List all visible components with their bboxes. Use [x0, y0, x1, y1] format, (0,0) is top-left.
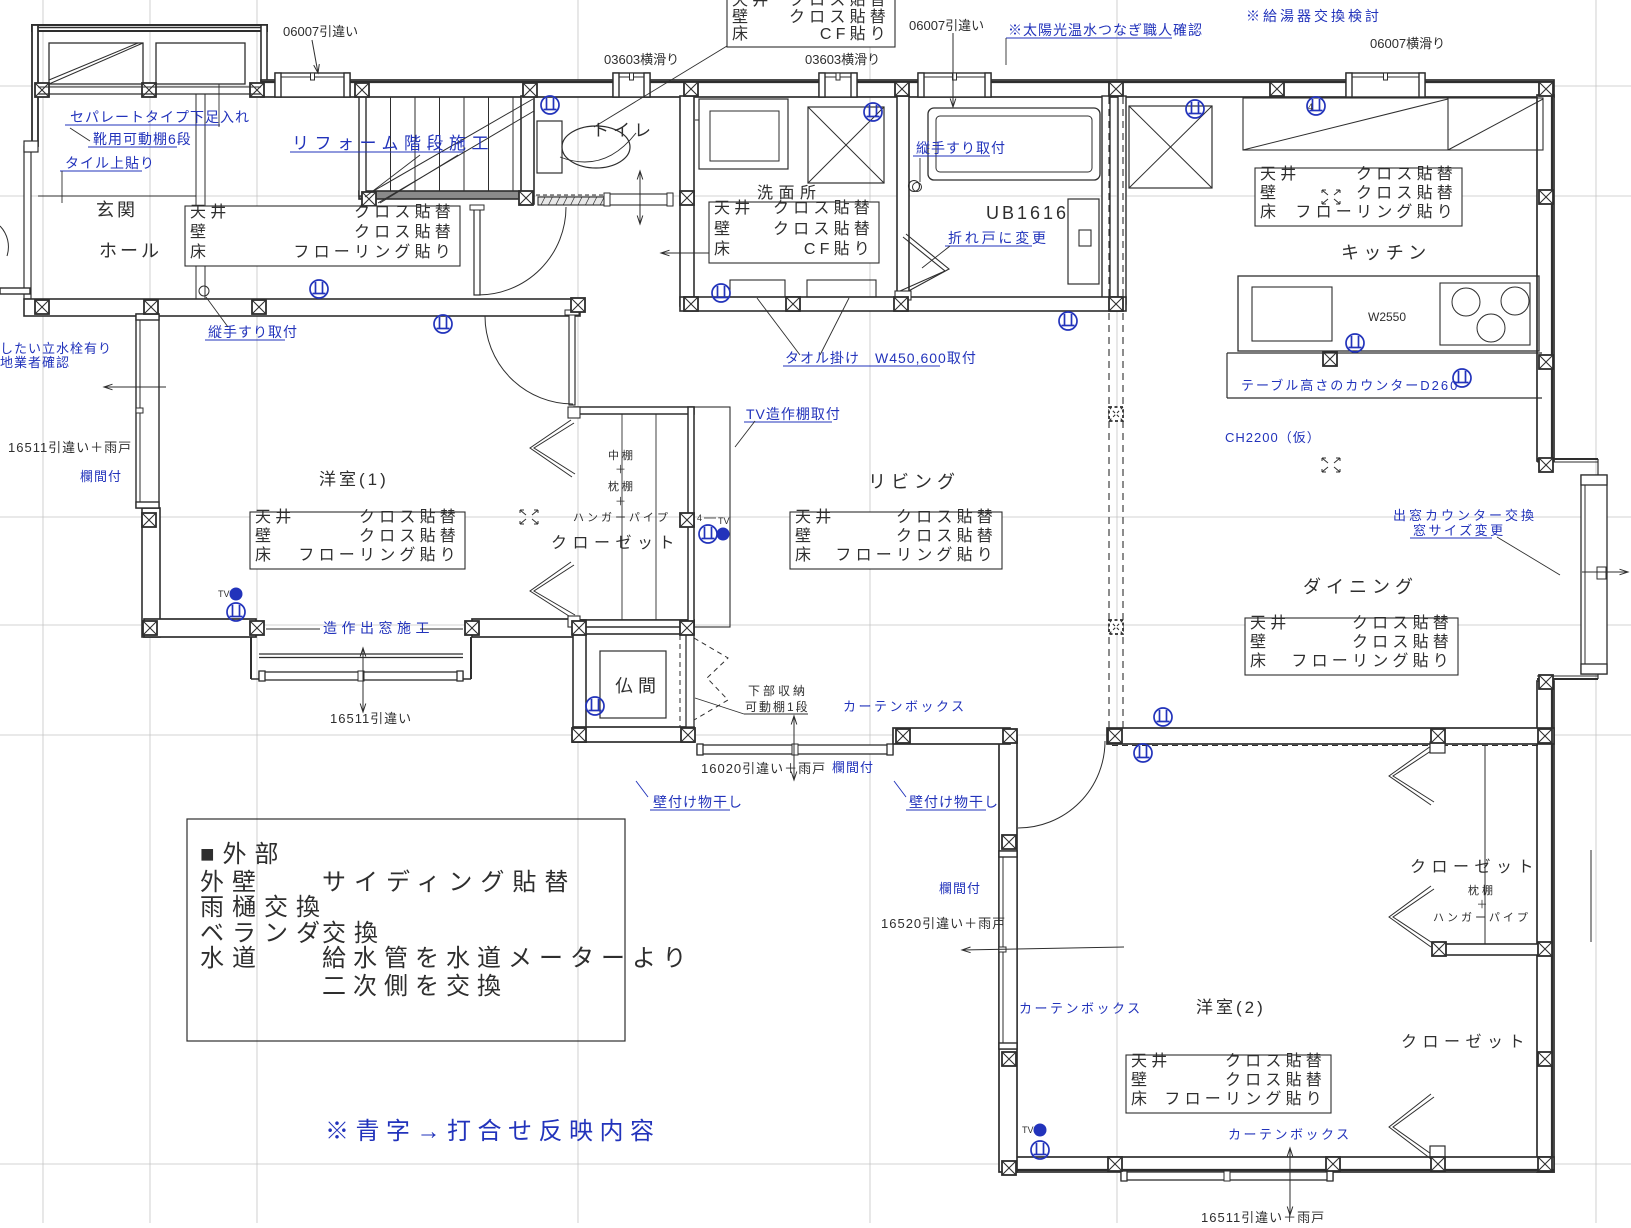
svg-text:クロス貼替: クロス貼替 — [789, 0, 890, 9]
svg-text:床: 床 — [190, 243, 210, 261]
svg-text:クロス貼替: クロス貼替 — [1352, 614, 1453, 632]
svg-text:キッチン: キッチン — [1341, 243, 1431, 263]
svg-text:枕棚: 枕棚 — [608, 479, 636, 493]
svg-text:サイディング貼替: サイディング貼替 — [322, 869, 576, 896]
svg-text:天井: 天井 — [255, 508, 295, 526]
svg-text:壁付け物干し: 壁付け物干し — [909, 794, 999, 810]
svg-text:クローゼット: クローゼット — [551, 534, 680, 552]
svg-text:クローゼット: クローゼット — [1410, 858, 1539, 876]
svg-text:ベランダ: ベランダ — [200, 920, 328, 947]
svg-text:クロス貼替: クロス貼替 — [773, 220, 874, 238]
svg-text:クロス貼替: クロス貼替 — [1352, 633, 1453, 651]
svg-text:床: 床 — [732, 25, 752, 43]
svg-text:壁: 壁 — [255, 526, 275, 545]
svg-text:壁: 壁 — [1131, 1070, 1151, 1089]
svg-text:クロス貼替: クロス貼替 — [354, 203, 455, 221]
svg-text:※給湯器交換検討: ※給湯器交換検討 — [1246, 8, 1382, 24]
svg-text:造作出窓施工: 造作出窓施工 — [323, 620, 434, 636]
svg-text:壁: 壁 — [795, 526, 815, 545]
svg-text:クロス貼替: クロス貼替 — [354, 223, 455, 241]
svg-text:06007横滑り: 06007横滑り — [1370, 36, 1445, 51]
svg-text:03603横滑り: 03603横滑り — [805, 52, 880, 67]
svg-text:＋: ＋ — [615, 496, 629, 508]
svg-text:クロス貼替: クロス貼替 — [773, 199, 874, 217]
svg-text:クロス貼替: クロス貼替 — [896, 527, 997, 545]
svg-text:カーテンボックス: カーテンボックス — [1019, 1001, 1143, 1016]
svg-text:クロス貼替: クロス貼替 — [1225, 1052, 1326, 1070]
svg-text:玄関: 玄関 — [96, 200, 138, 220]
svg-text:フローリング貼り: フローリング貼り — [1295, 203, 1457, 221]
svg-text:UB1616: UB1616 — [986, 203, 1069, 223]
svg-text:ハンガーパイプ: ハンガーパイプ — [573, 511, 671, 524]
svg-text:中棚: 中棚 — [608, 448, 636, 462]
svg-text:天井: 天井 — [190, 203, 230, 221]
svg-text:枕棚: 枕棚 — [1468, 883, 1496, 897]
svg-text:天井: 天井 — [732, 0, 772, 9]
svg-text:CF貼り: CF貼り — [804, 240, 874, 258]
svg-text:天井: 天井 — [714, 199, 754, 217]
svg-text:16511引違い: 16511引違い — [330, 711, 412, 726]
svg-text:床: 床 — [1131, 1090, 1151, 1108]
svg-text:4: 4 — [697, 513, 702, 523]
svg-text:地業者確認: 地業者確認 — [0, 355, 70, 370]
svg-text:壁付け物干し: 壁付け物干し — [653, 794, 743, 810]
svg-text:06007引違い: 06007引違い — [909, 18, 984, 33]
svg-text:タオル掛け W450,600取付: タオル掛け W450,600取付 — [785, 350, 977, 366]
svg-text:床: 床 — [1260, 203, 1280, 221]
svg-text:CH2200（仮）: CH2200（仮） — [1225, 430, 1321, 445]
svg-text:したい立水栓有り: したい立水栓有り — [0, 341, 112, 356]
svg-text:06007引違い: 06007引違い — [283, 24, 358, 39]
svg-text:洋室(2): 洋室(2) — [1196, 998, 1266, 1017]
svg-text:クロス貼替: クロス貼替 — [1225, 1071, 1326, 1089]
svg-text:洋室(1): 洋室(1) — [319, 470, 389, 489]
svg-text:16511引違い＋雨戸: 16511引違い＋雨戸 — [1201, 1210, 1325, 1223]
svg-text:床: 床 — [1250, 652, 1270, 670]
svg-text:窓サイズ変更: 窓サイズ変更 — [1413, 523, 1506, 538]
svg-text:フローリング貼り: フローリング貼り — [1164, 1090, 1326, 1108]
svg-text:TV造作棚取付: TV造作棚取付 — [746, 406, 841, 422]
svg-text:クロス貼替: クロス貼替 — [896, 508, 997, 526]
svg-text:フローリング貼り: フローリング貼り — [835, 546, 997, 564]
svg-text:リフォーム階段施工: リフォーム階段施工 — [292, 134, 494, 153]
svg-text:ダイニング: ダイニング — [1303, 577, 1418, 597]
svg-text:テーブル高さのカウンターD260: テーブル高さのカウンターD260 — [1241, 378, 1459, 393]
svg-text:水道: 水道 — [200, 945, 264, 972]
svg-text:＋: ＋ — [1477, 899, 1488, 911]
svg-text:リビング: リビング — [868, 472, 960, 492]
svg-text:縦手すり取付: 縦手すり取付 — [208, 324, 298, 340]
svg-text:セパレートタイプ下足入れ: セパレートタイプ下足入れ — [70, 109, 250, 125]
svg-text:交換: 交換 — [322, 920, 386, 947]
svg-text:フローリング貼り: フローリング貼り — [298, 546, 460, 564]
svg-text:クローゼット: クローゼット — [1401, 1033, 1530, 1051]
svg-text:16020引違い＋雨戸: 16020引違い＋雨戸 — [701, 761, 826, 776]
svg-text:壁: 壁 — [190, 222, 210, 241]
svg-text:ホール: ホール — [99, 241, 162, 261]
svg-text:縦手すり取付: 縦手すり取付 — [916, 140, 1006, 156]
svg-text:03603横滑り: 03603横滑り — [604, 52, 679, 67]
svg-text:下部収納: 下部収納 — [748, 683, 808, 698]
svg-text:天井: 天井 — [795, 508, 835, 526]
svg-text:壁: 壁 — [732, 7, 752, 26]
svg-text:フローリング貼り: フローリング貼り — [293, 243, 455, 261]
svg-text:出窓カウンター交換: 出窓カウンター交換 — [1393, 508, 1537, 523]
svg-text:床: 床 — [255, 546, 275, 564]
svg-text:雨樋交換: 雨樋交換 — [200, 894, 328, 921]
svg-text:折れ戸に変更: 折れ戸に変更 — [948, 230, 1049, 246]
svg-text:床: 床 — [714, 240, 734, 258]
svg-text:壁: 壁 — [714, 219, 734, 238]
svg-text:トイレ: トイレ — [592, 121, 655, 140]
svg-text:TV: TV — [1022, 1125, 1034, 1135]
svg-text:カーテンボックス: カーテンボックス — [843, 699, 967, 714]
svg-text:※青字→打合せ反映内容: ※青字→打合せ反映内容 — [325, 1118, 661, 1145]
svg-text:天井: 天井 — [1250, 614, 1290, 632]
svg-text:■外部: ■外部 — [200, 841, 287, 868]
svg-text:二次側を交換: 二次側を交換 — [322, 973, 508, 1000]
svg-text:TV: TV — [218, 589, 230, 599]
svg-text:＋: ＋ — [615, 464, 629, 476]
svg-text:可動棚1段: 可動棚1段 — [745, 699, 810, 714]
svg-text:クロス貼替: クロス貼替 — [359, 527, 460, 545]
svg-text:欄間付: 欄間付 — [832, 760, 874, 775]
svg-text:W2550: W2550 — [1368, 310, 1406, 324]
svg-text:クロス貼替: クロス貼替 — [789, 8, 890, 26]
svg-text:仏間: 仏間 — [615, 676, 661, 696]
svg-text:給水管を水道メーターより: 給水管を水道メーターより — [322, 945, 694, 972]
svg-text:欄間付: 欄間付 — [939, 881, 981, 896]
svg-text:TV: TV — [718, 516, 730, 526]
svg-text:※太陽光温水つなぎ職人確認: ※太陽光温水つなぎ職人確認 — [1008, 22, 1203, 38]
svg-text:ハンガーパイプ: ハンガーパイプ — [1433, 911, 1531, 924]
svg-text:天井: 天井 — [1260, 165, 1300, 183]
svg-text:天井: 天井 — [1131, 1052, 1171, 1070]
svg-text:タイル上貼り: タイル上貼り — [65, 155, 155, 171]
svg-text:欄間付: 欄間付 — [80, 469, 122, 484]
svg-text:クロス貼替: クロス貼替 — [1356, 165, 1457, 183]
svg-text:フローリング貼り: フローリング貼り — [1291, 652, 1453, 670]
svg-text:壁: 壁 — [1260, 183, 1280, 202]
svg-text:クロス貼替: クロス貼替 — [359, 508, 460, 526]
svg-text:16520引違い＋雨戸: 16520引違い＋雨戸 — [881, 916, 1006, 931]
svg-text:クロス貼替: クロス貼替 — [1356, 184, 1457, 202]
svg-text:外壁: 外壁 — [200, 869, 264, 896]
svg-text:16511引違い＋雨戸: 16511引違い＋雨戸 — [8, 440, 132, 455]
svg-text:カーテンボックス: カーテンボックス — [1228, 1127, 1352, 1142]
svg-text:4: 4 — [1308, 102, 1313, 112]
svg-text:床: 床 — [795, 546, 815, 564]
svg-text:CF貼り: CF貼り — [820, 25, 890, 43]
svg-text:壁: 壁 — [1250, 632, 1270, 651]
svg-text:靴用可動棚6段: 靴用可動棚6段 — [93, 131, 192, 147]
